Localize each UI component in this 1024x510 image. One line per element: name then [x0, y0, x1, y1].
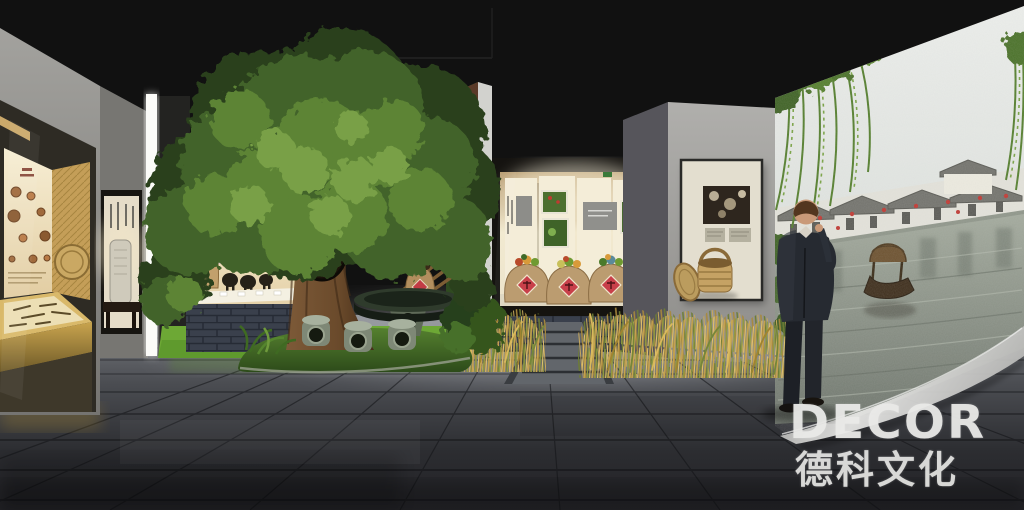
left-display-case — [0, 100, 96, 412]
watermark: DECOR 德科文化 — [789, 399, 977, 492]
stone-stool — [302, 315, 330, 346]
jacket-highlight — [777, 230, 796, 322]
exhibition-hall-rendering: DECOR 德科文化 — [0, 0, 1024, 510]
calligraphy-niche — [99, 190, 143, 334]
decor-cjk-text: 德科文化 — [795, 450, 977, 492]
gray-text-frame — [583, 202, 617, 230]
stone-stool — [344, 321, 372, 352]
green-photo — [541, 190, 568, 214]
trouser-right — [805, 314, 823, 400]
jacket-seam — [804, 248, 805, 318]
exhibit-frame — [670, 160, 765, 304]
hand — [815, 224, 823, 232]
woven-tray — [55, 245, 89, 279]
console-table — [103, 302, 140, 312]
gray-photo-frame — [516, 196, 532, 226]
rice-grass-right — [578, 307, 795, 378]
pickle-jars — [505, 254, 634, 304]
sepia-photo — [703, 186, 750, 224]
exit-sign — [603, 172, 612, 177]
decor-logo-text: DECOR — [789, 399, 986, 445]
green-photo-2 — [542, 218, 569, 248]
table-leg — [106, 312, 110, 328]
table-leg-2 — [132, 312, 136, 328]
stone-stool — [388, 319, 416, 350]
